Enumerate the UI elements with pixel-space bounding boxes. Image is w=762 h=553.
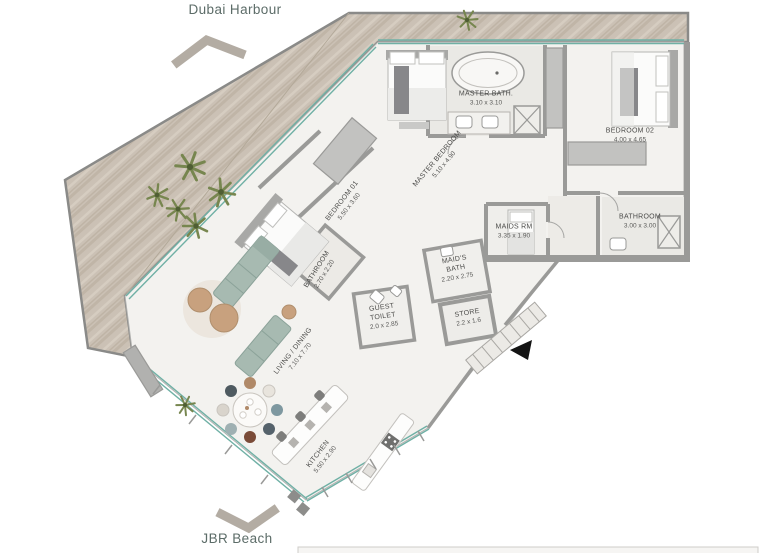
- jbr-beach-label: JBR Beach: [162, 531, 312, 546]
- dining-chair: [217, 404, 229, 416]
- dining-set: [217, 377, 283, 443]
- right-exterior-wall: [684, 42, 690, 262]
- dining-table: [233, 393, 267, 427]
- adjacent-plan-edge: [298, 547, 758, 553]
- pouf: [210, 304, 238, 332]
- sink: [482, 116, 498, 128]
- floor-plan-drawing: [0, 0, 762, 553]
- room-label-guest-toilet: GUEST TOILET 2.0 x 2.85: [361, 301, 404, 334]
- dining-chair: [225, 385, 237, 397]
- bottom-exterior-wall: [486, 255, 690, 262]
- dining-chair: [263, 423, 275, 435]
- sink: [456, 116, 472, 128]
- jbr-beach-text: JBR Beach: [201, 531, 272, 546]
- dining-chair: [244, 431, 256, 443]
- floorplan-page: Dubai Harbour JBR Beach MASTER BATH. 3.1…: [0, 0, 762, 553]
- bathtub-drain: [495, 71, 498, 74]
- dining-chair: [271, 404, 283, 416]
- wardrobe: [546, 48, 563, 128]
- dining-chair: [263, 385, 275, 397]
- room-label-bedroom02: BEDROOM 02 4.00 x 4.65: [606, 127, 654, 146]
- hall-floor: [548, 196, 598, 256]
- room-label-master-bath: MASTER BATH. 3.10 x 3.10: [459, 90, 513, 109]
- pouf: [188, 288, 212, 312]
- toilet: [610, 238, 626, 250]
- room-label-bathroom: BATHROOM 3.00 x 3.00: [619, 213, 661, 232]
- dining-chair: [244, 377, 256, 389]
- dubai-harbour-label: Dubai Harbour: [160, 2, 310, 17]
- wardrobe: [568, 142, 646, 165]
- bedroom02-bed: [612, 50, 678, 128]
- chevron-down-icon: [217, 508, 278, 530]
- chevron-up-icon: [171, 35, 245, 65]
- pouf: [282, 305, 296, 319]
- dubai-harbour-text: Dubai Harbour: [189, 2, 282, 17]
- room-label-maids-rm: MAIDS RM 3.35 x 1.90: [496, 223, 533, 242]
- dining-chair: [225, 423, 237, 435]
- master-bed: [386, 50, 448, 129]
